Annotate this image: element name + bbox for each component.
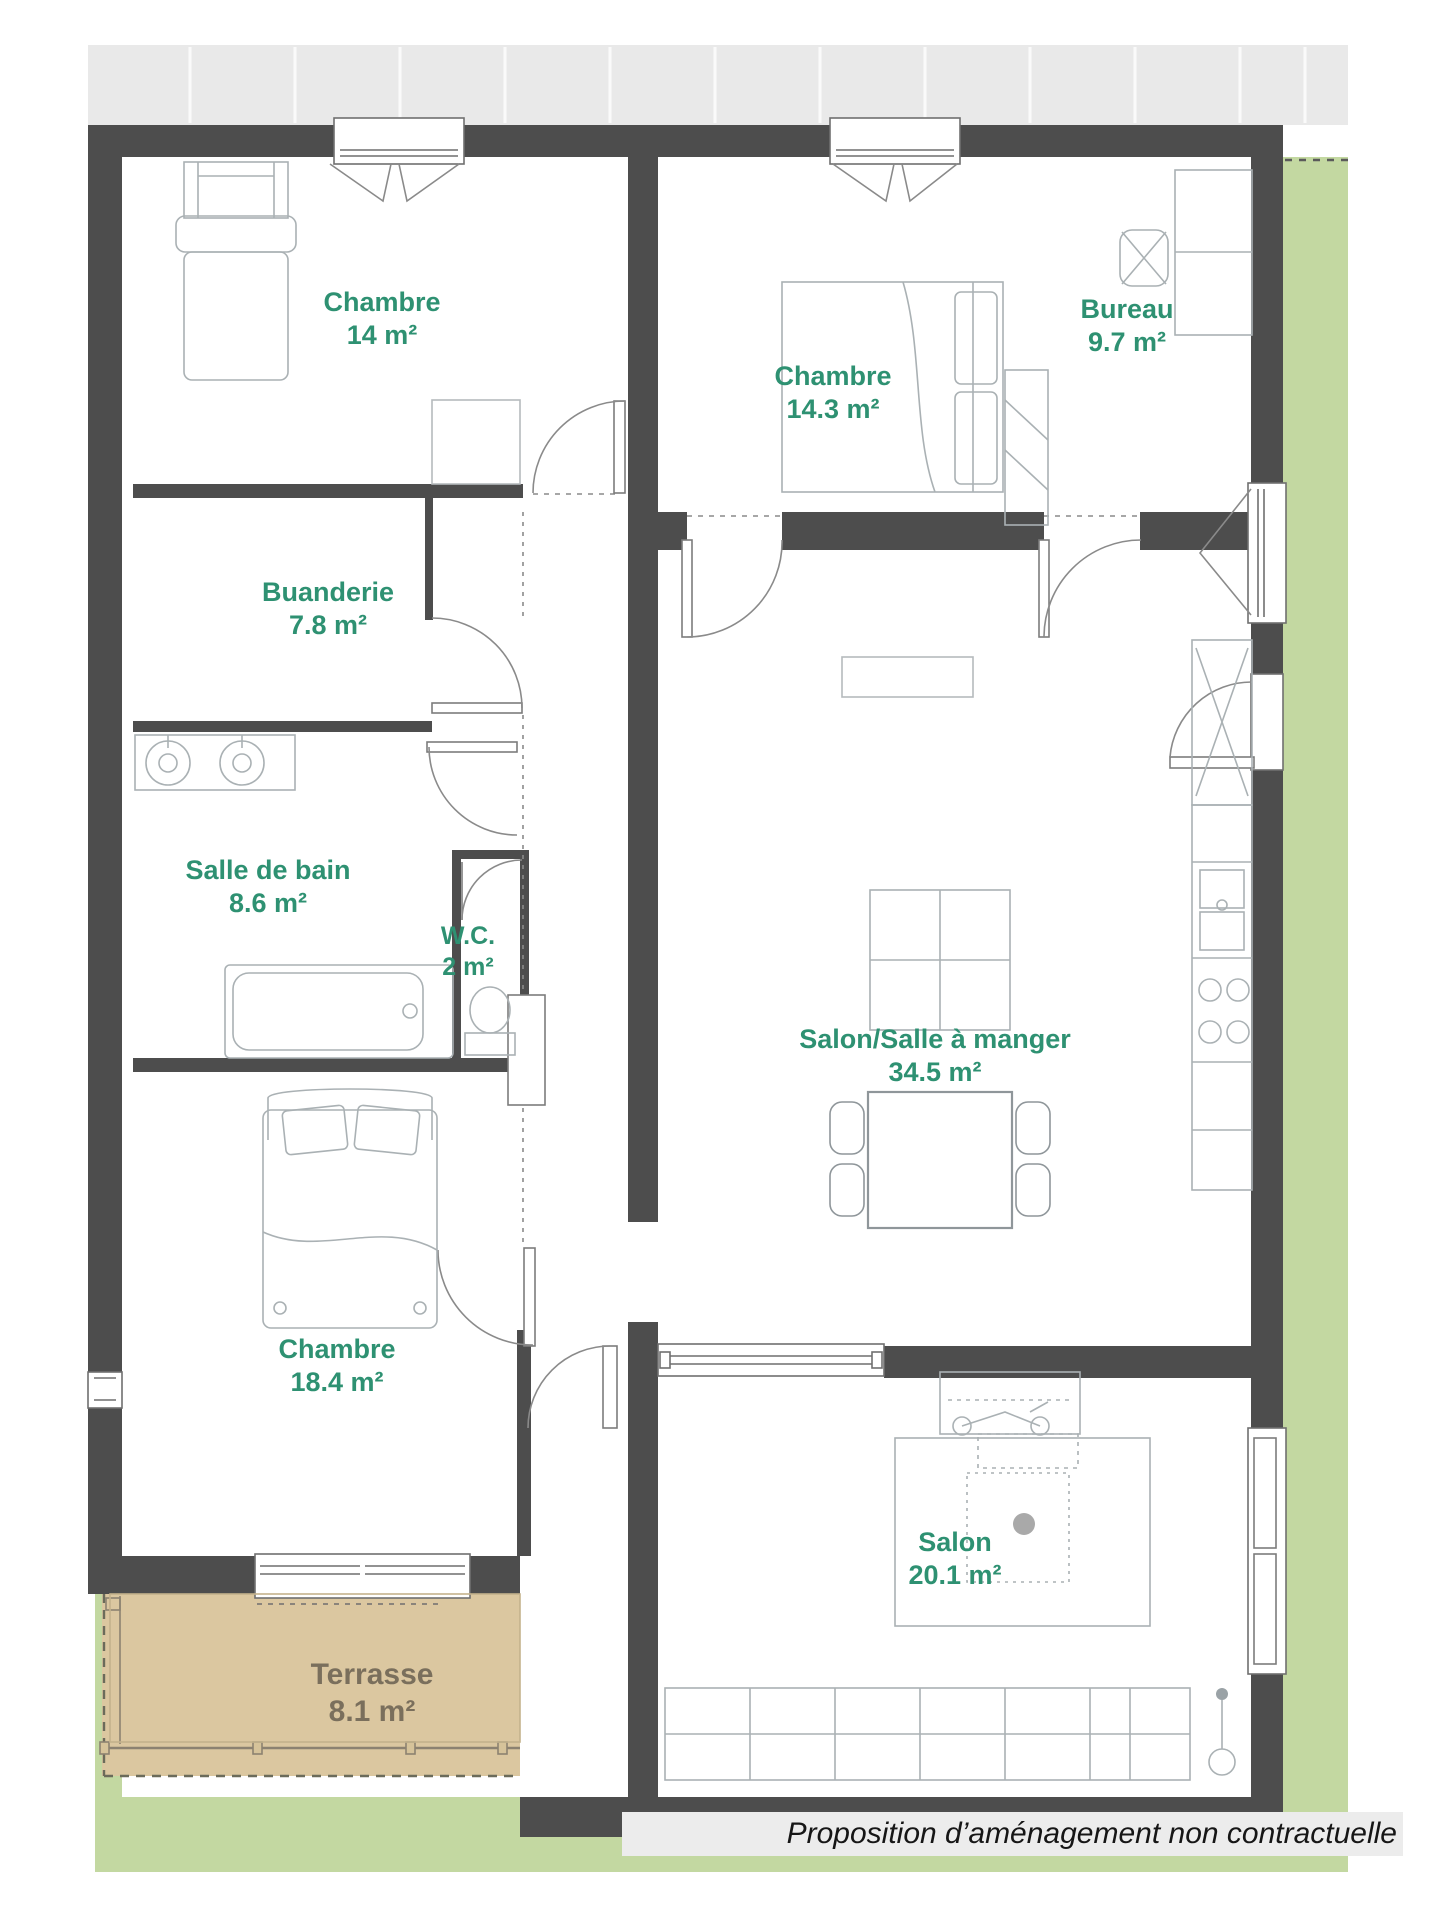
window-bureau [1200, 483, 1286, 623]
door-wc [462, 860, 522, 920]
kitchen-island [870, 890, 1010, 1030]
scooter [953, 1402, 1049, 1435]
door-salle-de-bain [427, 742, 517, 835]
room-area: 34.5 m² [799, 1056, 1071, 1089]
double-sink [135, 735, 295, 790]
bed-double-chambre184 [263, 1089, 437, 1328]
room-label-terrasse: Terrasse 8.1 m² [311, 1656, 434, 1730]
room-label-chambre-18-4: Chambre 18.4 m² [278, 1333, 395, 1400]
room-label-chambre-14: Chambre 14 m² [323, 286, 440, 353]
door-buanderie [432, 618, 522, 713]
window-salon [1248, 1428, 1286, 1674]
room-name: Chambre [278, 1334, 395, 1364]
room-label-salon: Salon 20.1 m² [908, 1526, 1001, 1593]
door-garden-kitchen [1170, 674, 1283, 770]
window-chambre143 [830, 118, 960, 201]
room-label-buanderie: Buanderie 7.8 m² [262, 576, 394, 643]
corridor-closet [432, 400, 520, 484]
window-west-small [88, 1372, 122, 1408]
room-name: Chambre [774, 361, 891, 391]
bathtub [225, 965, 453, 1058]
room-label-bureau: Bureau 9.7 m² [1080, 293, 1173, 360]
room-area: 20.1 m² [908, 1559, 1001, 1592]
floor-lamp [1209, 1688, 1235, 1775]
room-area: 2 m² [441, 952, 495, 983]
room-area: 14 m² [323, 319, 440, 352]
floor-plan: Chambre 14 m² Chambre 14.3 m² Bureau 9.7… [0, 0, 1447, 1920]
room-area: 14.3 m² [774, 393, 891, 426]
sideboard [842, 657, 973, 697]
door-chambre14 [533, 401, 625, 494]
plan-linework [0, 0, 1447, 1920]
room-label-wc: W.C. 2 m² [441, 921, 495, 983]
door-chambre184 [438, 1248, 535, 1346]
room-name: W.C. [441, 922, 495, 950]
dining-table [830, 1092, 1050, 1228]
room-name: Terrasse [311, 1658, 434, 1691]
room-name: Salle de bain [185, 855, 350, 885]
room-area: 8.1 m² [311, 1693, 434, 1730]
room-area: 8.6 m² [185, 887, 350, 920]
tv-bench [940, 1372, 1080, 1468]
sliding-door-salon-divider [658, 1344, 884, 1376]
room-name: Salon/Salle à manger [799, 1024, 1071, 1054]
room-area: 18.4 m² [278, 1366, 395, 1399]
door-chambre143 [682, 516, 782, 637]
room-name: Bureau [1080, 294, 1173, 324]
bed-single-chambre14 [176, 162, 296, 380]
room-name: Buanderie [262, 577, 394, 607]
room-area: 7.8 m² [262, 609, 394, 642]
door-entry [528, 1346, 617, 1428]
room-name: Chambre [323, 287, 440, 317]
footer-disclaimer-bar: Proposition d’aménagement non contractue… [622, 1812, 1403, 1856]
room-label-chambre-14-3: Chambre 14.3 m² [774, 360, 891, 427]
window-chambre14 [330, 118, 464, 201]
room-label-salon-salle-a-manger: Salon/Salle à manger 34.5 m² [799, 1023, 1071, 1090]
sofa [665, 1688, 1190, 1780]
corridor-pocket-door [508, 995, 545, 1105]
room-label-salle-de-bain: Salle de bain 8.6 m² [185, 854, 350, 921]
door-bureau [1039, 516, 1141, 637]
footer-disclaimer-text: Proposition d’aménagement non contractue… [787, 1817, 1397, 1851]
room-area: 9.7 m² [1080, 326, 1173, 359]
room-name: Salon [918, 1527, 992, 1557]
sidewalk-seams [190, 47, 1305, 123]
kitchen-counter [1192, 640, 1252, 1190]
